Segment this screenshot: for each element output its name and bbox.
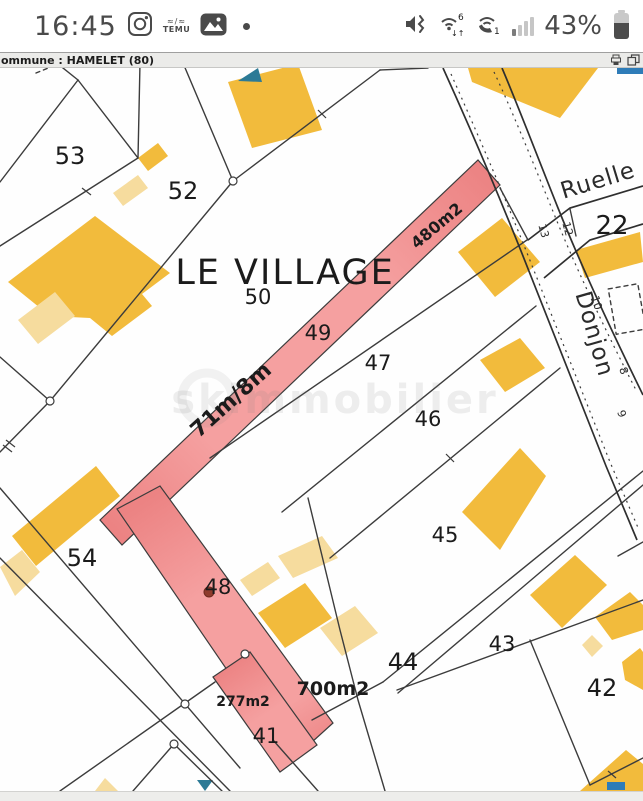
- overlap-windows-icon[interactable]: [627, 51, 640, 70]
- wifi-calling-icon: 1: [475, 12, 502, 40]
- parcel-label-41: 41: [253, 724, 280, 748]
- building-annex: [113, 175, 148, 206]
- app-title-bar: ommune : HAMELET (80): [0, 52, 643, 68]
- temu-icon: ≈/≈ TEMU: [163, 18, 190, 34]
- dashed-building-outline: [608, 284, 643, 335]
- battery-icon: [614, 13, 629, 39]
- building: [462, 448, 546, 550]
- listing-area-277: 277m2: [216, 694, 270, 710]
- house-number-9: 9: [614, 408, 629, 419]
- parcel-label-46: 46: [415, 407, 442, 431]
- house-number-8: 8: [616, 365, 631, 376]
- place-name: LE VILLAGE: [175, 253, 394, 293]
- building-annex: [278, 536, 338, 578]
- parcel-label-48: 48: [205, 575, 232, 599]
- signal-bars-icon: [512, 16, 534, 36]
- parcel-label-52: 52: [168, 177, 199, 205]
- svg-text:6: 6: [458, 13, 464, 23]
- parcel-label-54: 54: [67, 544, 98, 572]
- instagram-icon: [127, 11, 153, 41]
- listing-area-700: 700m2: [297, 678, 370, 700]
- cadastral-map[interactable]: skimmobilier LE VILLAGE 53 52 50 49 47 4…: [0, 68, 643, 791]
- clock: 16:45: [34, 11, 117, 42]
- church-marker-triangle: [238, 68, 262, 82]
- map-marker-blue: [607, 782, 625, 790]
- scrollbar-fragment[interactable]: [617, 68, 643, 74]
- parcel-label-49: 49: [305, 321, 332, 345]
- map-viewport[interactable]: skimmobilier LE VILLAGE 53 52 50 49 47 4…: [0, 68, 643, 791]
- wifi6-icon: 6 ↓↑: [438, 11, 465, 41]
- notification-dot-icon: [243, 23, 250, 30]
- parcel-label-45: 45: [432, 523, 459, 547]
- parcel-label-44: 44: [388, 648, 419, 676]
- building-annex: [320, 606, 378, 656]
- building-annex: [582, 635, 603, 657]
- building-annex: [240, 562, 280, 596]
- house-number-12: 12: [559, 220, 575, 237]
- house-number-13: 13: [535, 222, 551, 239]
- building-annex: [95, 778, 118, 791]
- svg-text:1: 1: [494, 27, 500, 36]
- street-name-ruelle: Ruelle: [558, 157, 639, 204]
- parcel-label-43: 43: [489, 632, 516, 656]
- building: [138, 143, 168, 171]
- parcel-label-42: 42: [587, 674, 618, 702]
- marker-triangle: [197, 780, 213, 791]
- gallery-icon: [200, 13, 227, 40]
- commune-title: ommune : HAMELET (80): [1, 54, 154, 67]
- building: [468, 68, 598, 118]
- road-donjon: [443, 68, 643, 540]
- status-bar: 16:45 ≈/≈ TEMU: [0, 0, 643, 52]
- mute-vibrate-icon: [403, 12, 428, 40]
- building: [622, 648, 643, 690]
- building: [458, 218, 540, 297]
- parcel-label-53: 53: [55, 142, 86, 170]
- building: [595, 592, 643, 640]
- print-icon[interactable]: [610, 51, 622, 70]
- battery-percent: 43%: [544, 11, 602, 41]
- parcel-label-22: 22: [595, 211, 628, 241]
- svg-text:↓↑: ↓↑: [451, 29, 464, 37]
- parcel-label-50: 50: [245, 285, 272, 309]
- parcel-label-47: 47: [365, 351, 392, 375]
